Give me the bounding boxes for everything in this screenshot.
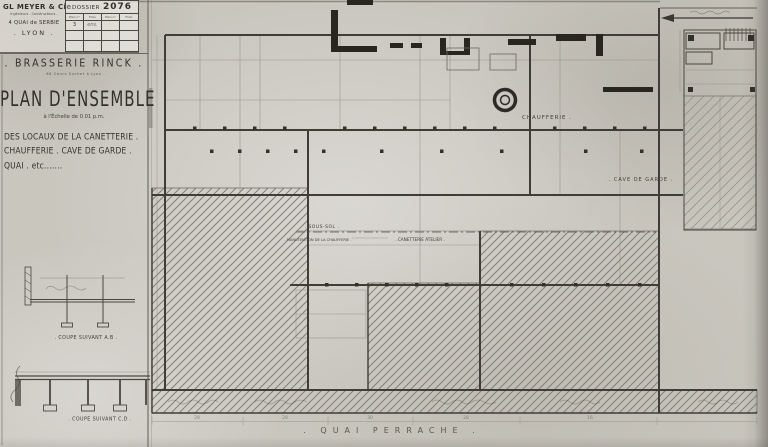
room-label-chaufferie: CHAUFFERIE . [522, 115, 572, 121]
drawing-scale: à l'Échelle de 0.01 p.m. [0, 114, 148, 120]
dossier-number: 2076 [103, 2, 132, 12]
company-title-block: GL MEYER & Cie Ingénieurs - Constructeur… [0, 0, 139, 53]
room-label-sous-sol: . SOUS-SOL . [305, 224, 340, 230]
room-label-manutention: . MANUTENTION DE LA CHAUFFERIE . [285, 238, 352, 242]
dossier-col: Folio [120, 14, 138, 20]
svg-text:16: 16 [587, 415, 593, 421]
dossier-table: 3 ens. [66, 21, 138, 51]
dossier-label: DOSSIER [72, 5, 100, 11]
project-address: . 66 Cours Suchet à Lyon . [0, 72, 148, 76]
dossier-cell [66, 31, 84, 41]
dossier-box: DOSSIER 2076 Plan n° Folio Plan n° Folio… [65, 0, 139, 52]
dossier-cell [102, 41, 120, 51]
section-cd-sketch [11, 366, 150, 411]
section-cd-caption: . COUPE SUIVANT C.D . [68, 417, 131, 423]
dossier-cell: 3 [66, 21, 84, 31]
dossier-cell [120, 41, 138, 51]
dossier-col: Plan n° [102, 14, 120, 20]
dossier-column-headers: Plan n° Folio Plan n° Folio [66, 14, 138, 21]
svg-text:30: 30 [367, 415, 373, 421]
roof-structures [331, 0, 653, 92]
svg-text:28: 28 [463, 415, 469, 421]
hatch-mid-block [368, 283, 480, 390]
dossier-cell [120, 21, 138, 31]
chimney-circle [495, 90, 516, 111]
room-label-cave-de-garde: . CAVE DE GARDE . [609, 177, 674, 183]
subject-line-3: QUAI . etc....... [4, 157, 148, 174]
dossier-cell [102, 21, 120, 31]
dossier-cell [66, 41, 84, 51]
hatch-left-block [152, 188, 308, 390]
room-label-canetterie: . CANETTERIE ATELIER . [395, 237, 445, 242]
section-ab-sketch [25, 267, 135, 327]
company-info: GL MEYER & Cie Ingénieurs - Constructeur… [0, 0, 65, 52]
column-row-middle [210, 150, 644, 154]
drawing-subject: DES LOCAUX DE LA CANETTERIE . CHAUFFERIE… [0, 130, 148, 173]
company-address: 4 QUAI de SERBIE [3, 20, 65, 26]
company-subtitle: Ingénieurs - Constructeurs . [3, 12, 65, 16]
drawing-title-block: . BRASSERIE RINCK . . 66 Cours Suchet à … [0, 58, 148, 173]
hatch-bottom-band [152, 390, 757, 413]
dossier-cell [84, 41, 102, 51]
company-city: . LYON . [3, 29, 65, 37]
project-name: . BRASSERIE RINCK . [0, 57, 148, 70]
company-name: GL MEYER & Cie [3, 3, 65, 11]
street-label-quai-perrache: . QUAI PERRACHE . [303, 426, 480, 435]
drawing-title: PLAN D'ENSEMBLE [0, 86, 148, 112]
svg-text:28: 28 [194, 415, 200, 421]
dossier-cell: ens. [84, 21, 102, 31]
svg-text:28: 28 [282, 415, 288, 421]
hatched-zones [152, 96, 757, 413]
dossier-cell [120, 31, 138, 41]
dossier-cell [84, 31, 102, 41]
direction-arrow-icon [661, 11, 753, 22]
dossier-header: DOSSIER 2076 [66, 1, 138, 14]
dossier-col: Folio [84, 14, 102, 20]
dossier-cell [102, 31, 120, 41]
dossier-col: Plan n° [66, 14, 84, 20]
section-ab-caption: . COUPE SUIVANT A.B . [55, 335, 118, 341]
blueprint-sheet: CHAUFFERIE . . CAVE DE GARDE . . SOUS-SO… [0, 0, 768, 447]
dimension-numbers: 28 28 30 28 16 [194, 415, 593, 421]
hatch-right-block [480, 231, 659, 390]
